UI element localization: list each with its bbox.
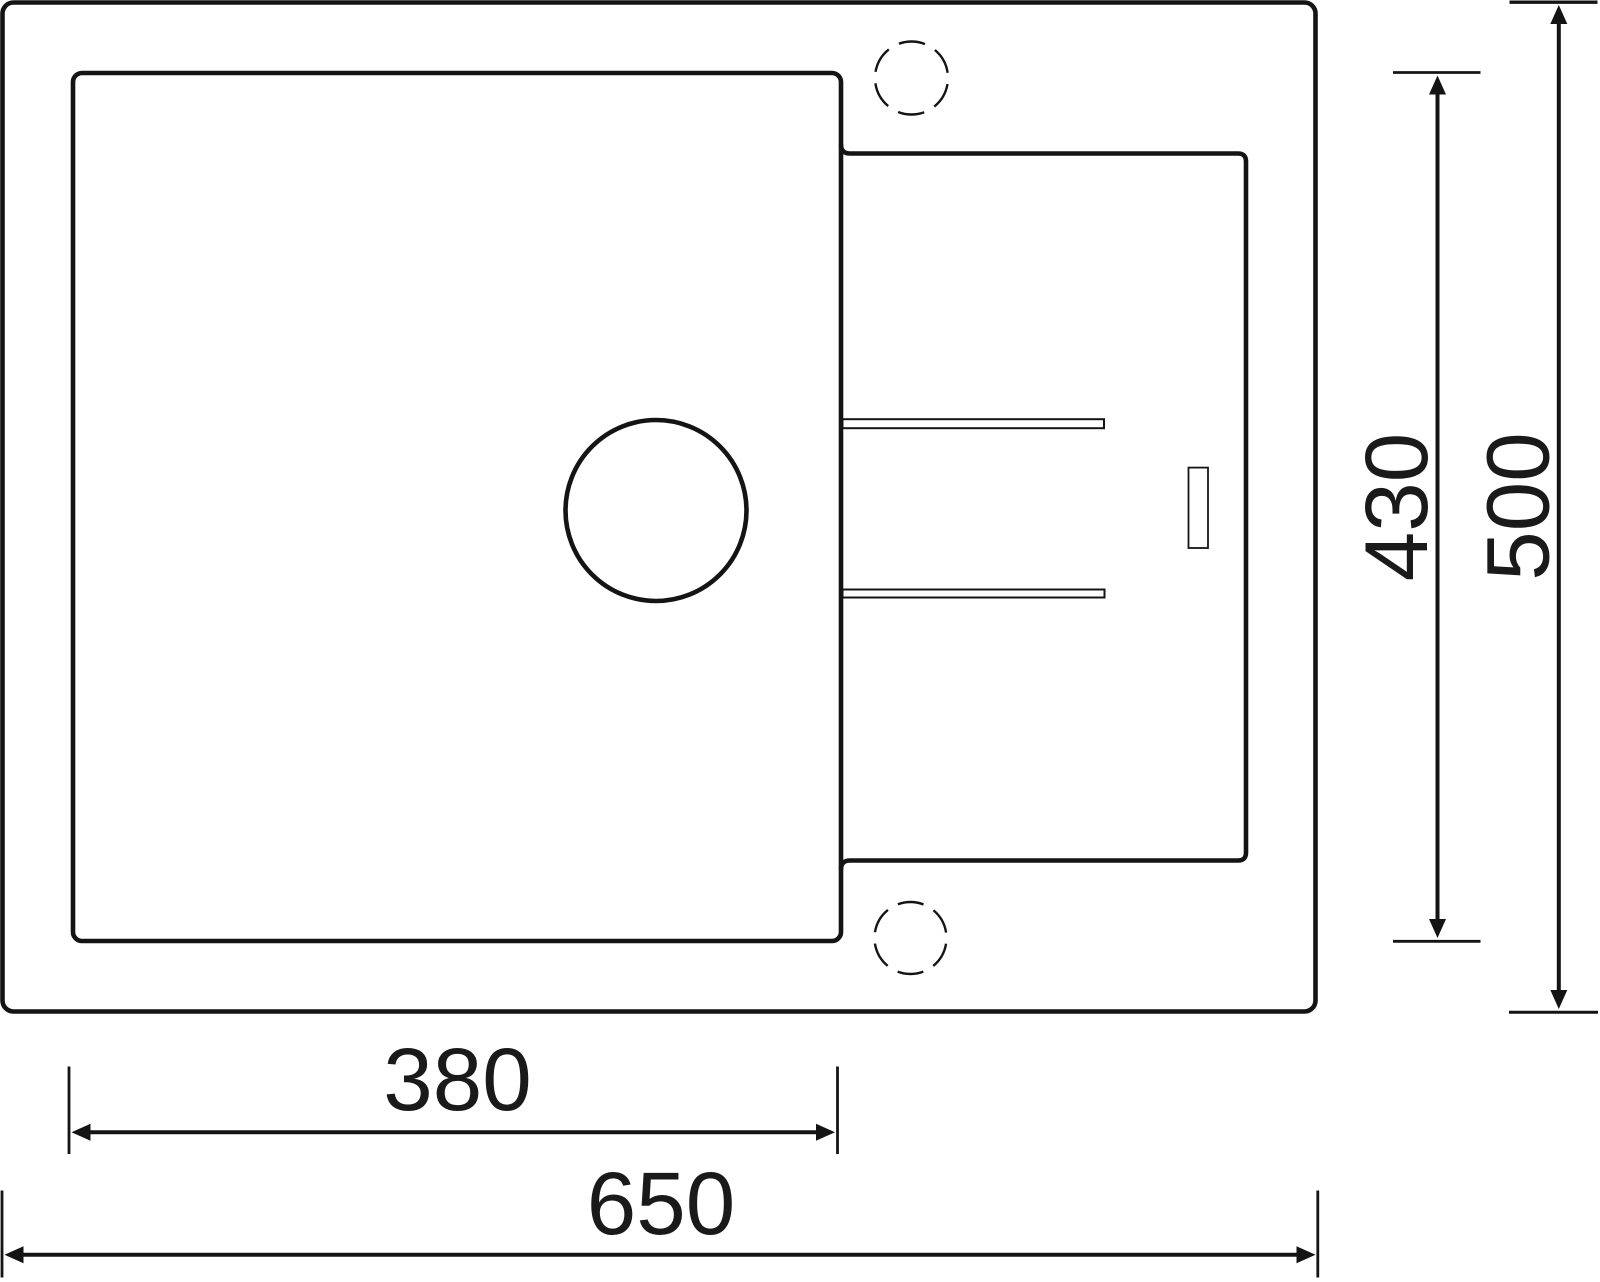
svg-text:650: 650 [587,1153,736,1253]
svg-text:500: 500 [1468,432,1568,581]
svg-text:380: 380 [383,1029,532,1129]
svg-text:430: 430 [1346,433,1446,582]
